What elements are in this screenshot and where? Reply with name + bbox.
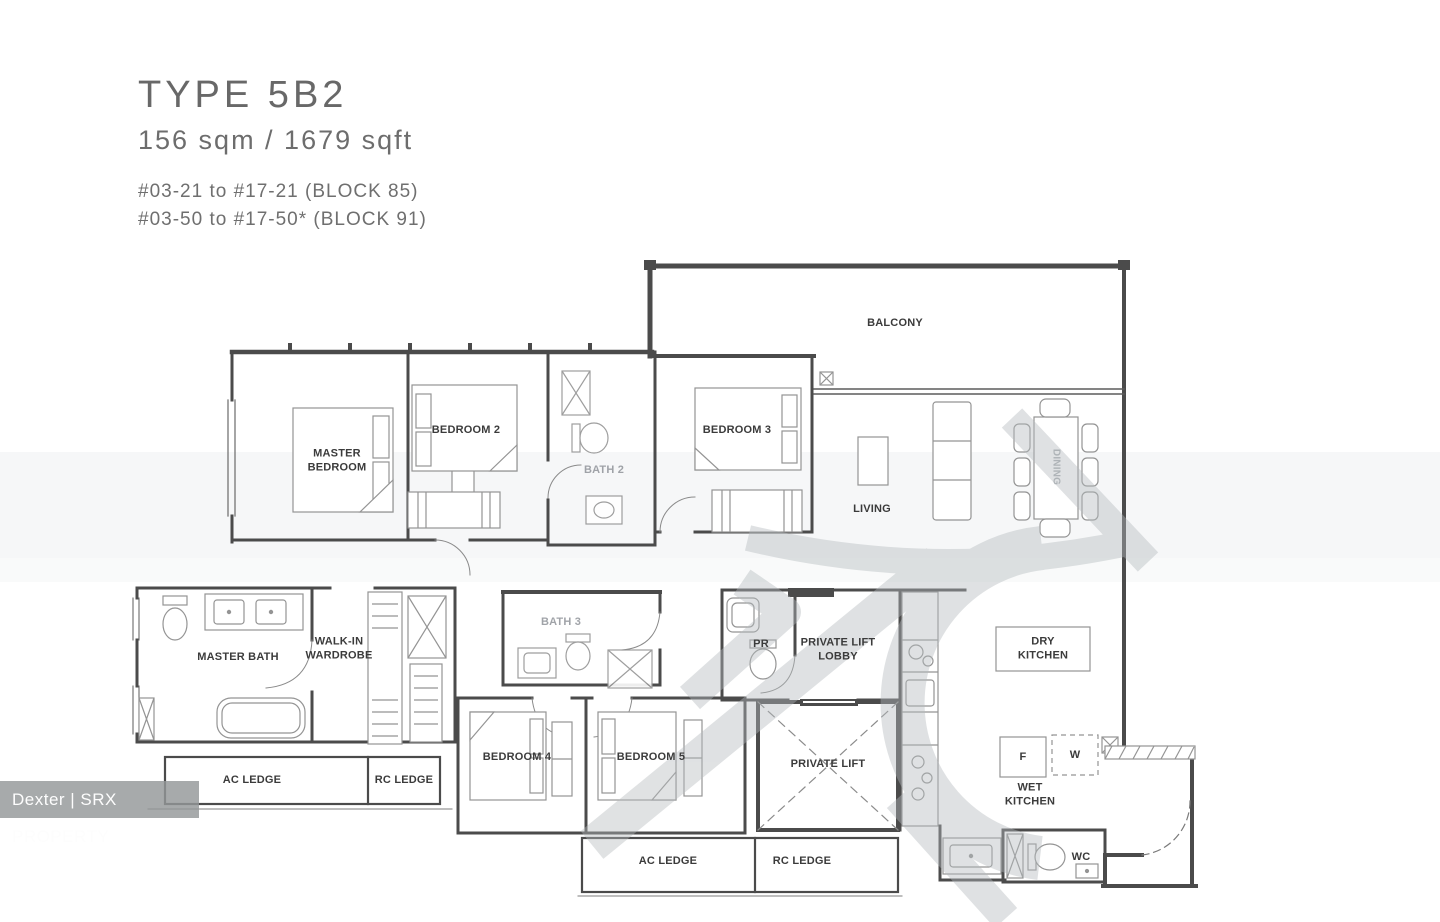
unit-area: 156 sqm / 1679 sqft (138, 125, 427, 156)
label-master-bath: MASTER BATH (197, 650, 278, 664)
label-wet-kitchen: WET KITCHEN (998, 781, 1062, 810)
label-bath-2: BATH 2 (584, 463, 624, 477)
label-ac-ledge-left: AC LEDGE (223, 773, 281, 787)
label-dry-kitchen: DRY KITCHEN (1011, 635, 1075, 664)
credit-watermark: Dexter | SRX PROPERTY (0, 781, 199, 818)
label-rc-ledge-left: RC LEDGE (375, 773, 433, 787)
label-private-lift: PRIVATE LIFT (791, 757, 866, 771)
label-bedroom-2: BEDROOM 2 (432, 423, 500, 437)
label-bedroom-3: BEDROOM 3 (703, 423, 771, 437)
label-balcony: BALCONY (867, 316, 923, 330)
label-fridge: F (1020, 750, 1027, 764)
label-dining: DINING (1050, 449, 1063, 485)
label-washer: W (1070, 748, 1081, 762)
label-pr: PR (753, 637, 769, 651)
unit-ranges: #03-21 to #17-21 (BLOCK 85) #03-50 to #1… (138, 178, 427, 233)
label-ac-ledge-bottom: AC LEDGE (639, 854, 697, 868)
label-living: LIVING (853, 502, 891, 516)
unit-type-title: TYPE 5B2 (138, 74, 427, 117)
label-private-lift-lobby: PRIVATE LIFT LOBBY (788, 636, 888, 665)
label-bedroom-5: BEDROOM 5 (617, 750, 685, 764)
label-rc-ledge-bottom: RC LEDGE (773, 854, 831, 868)
label-bedroom-4: BEDROOM 4 (483, 750, 551, 764)
title-block: TYPE 5B2 156 sqm / 1679 sqft #03-21 to #… (138, 74, 427, 233)
floor-plan-page: TYPE 5B2 156 sqm / 1679 sqft #03-21 to #… (0, 0, 1440, 922)
unit-range-block-85: #03-21 to #17-21 (BLOCK 85) (138, 178, 427, 206)
unit-range-block-91: #03-50 to #17-50* (BLOCK 91) (138, 206, 427, 234)
label-master-bedroom: MASTER BEDROOM (294, 447, 380, 476)
label-walk-in-wardrobe: WALK-IN WARDROBE (289, 635, 389, 664)
label-wc: WC (1072, 850, 1091, 864)
label-bath-3: BATH 3 (541, 615, 581, 629)
